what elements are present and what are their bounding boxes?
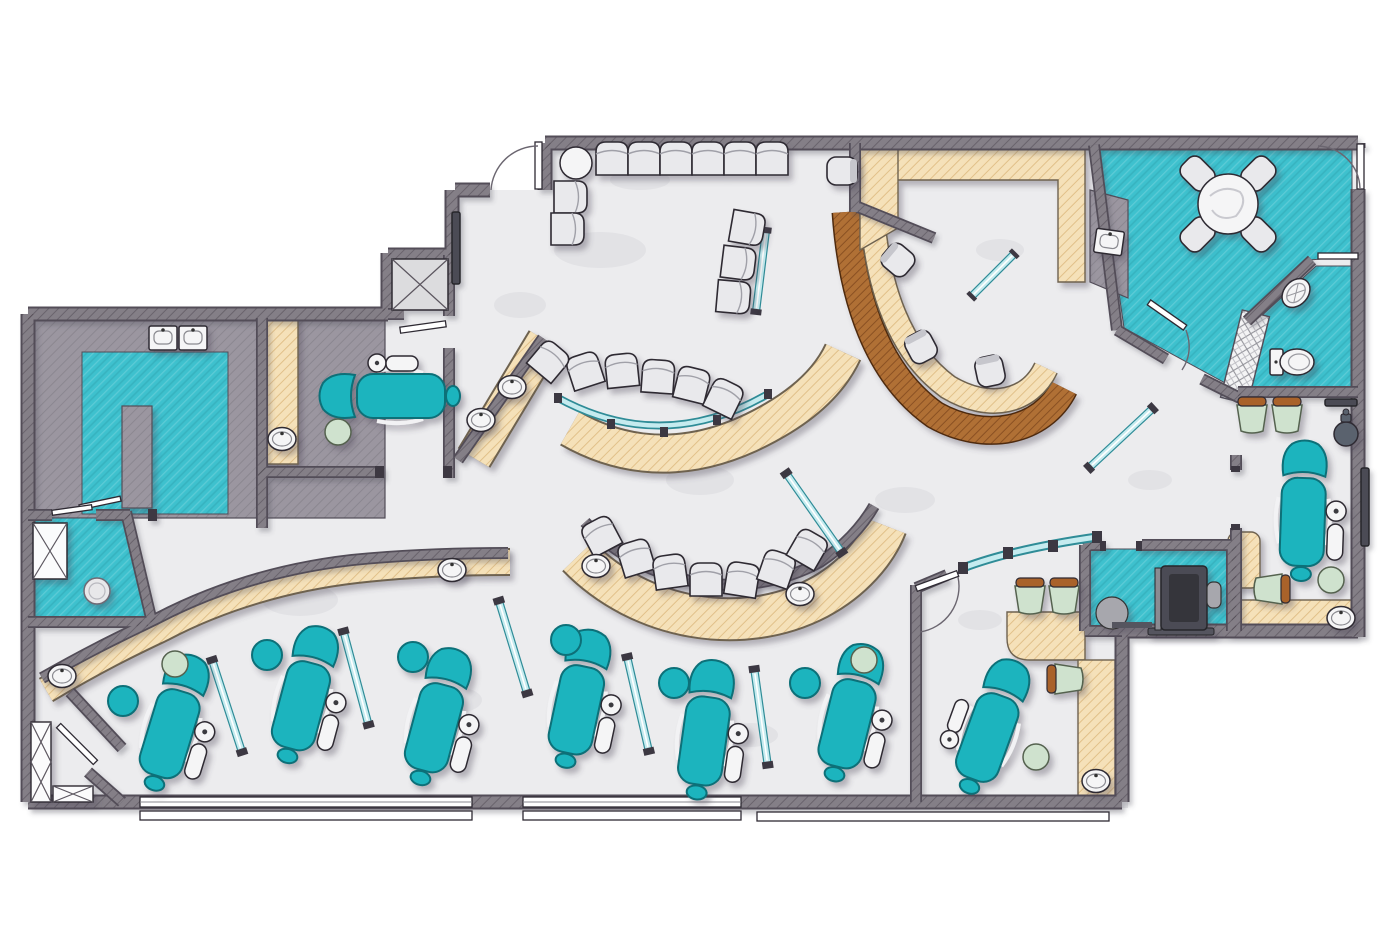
ortho-chair [724, 561, 761, 599]
assistant-stool [851, 647, 877, 673]
operator-stool [108, 686, 138, 716]
sterilization-island [122, 406, 152, 508]
handwash-sink [498, 376, 526, 399]
floor-plan-page: Dental Clinic Floor Plan [0, 0, 1400, 943]
assistant-stool [1023, 744, 1049, 770]
side-chair [1015, 578, 1045, 614]
side-chair [1272, 397, 1302, 433]
waiting-chair [728, 209, 766, 246]
ortho-chair [641, 359, 675, 394]
waiting-chair [628, 142, 660, 175]
waiting-chair [716, 280, 752, 315]
operator-stool [659, 668, 689, 698]
waiting-chair [724, 142, 756, 175]
sterilization-floor [82, 352, 228, 514]
operator-stool [551, 625, 581, 655]
side-chair [1049, 578, 1079, 614]
waiting-chair [596, 142, 628, 175]
operator-stool [252, 640, 282, 670]
assistant-stool [162, 651, 188, 677]
window-sill-3 [757, 812, 1109, 821]
delivery-unit [368, 354, 418, 372]
side-chair [1047, 664, 1083, 694]
coffee-table [560, 147, 592, 179]
waiting-chair [720, 245, 757, 281]
reception-task-chair [973, 353, 1007, 388]
ortho-chair [604, 352, 639, 388]
assistant-stool [325, 419, 351, 445]
operatory-right-window-panel [1361, 468, 1369, 546]
dental-clinic-floor-plan: Dental Clinic Floor Plan [0, 0, 1400, 943]
waiting-chair [660, 142, 692, 175]
side-chair [1254, 574, 1290, 604]
handwash-sink [467, 409, 495, 432]
kitchenette-sink [1093, 228, 1124, 256]
counter-sink [48, 665, 76, 688]
ortho-chair [690, 563, 722, 596]
operator-stool [398, 642, 428, 672]
counter-sink [438, 559, 466, 582]
counter-sink [582, 555, 610, 578]
checkin-chair [827, 157, 857, 185]
vestibule-window-panel [452, 212, 460, 284]
operator-stool [790, 668, 820, 698]
waiting-chair [692, 142, 724, 175]
dental-chair [320, 369, 461, 423]
consult-sink [1082, 770, 1110, 793]
elevator-shaft [392, 259, 448, 310]
operatory-sink [268, 428, 296, 451]
entry-door [491, 142, 542, 190]
toilet [1270, 349, 1314, 375]
counter-sink [786, 583, 814, 606]
utility-stool [84, 578, 110, 604]
waiting-chair [756, 142, 788, 175]
waiting-chair [551, 213, 584, 245]
utility-equipment [33, 523, 67, 579]
waiting-chair [554, 181, 587, 213]
restroom-door [1318, 253, 1358, 259]
ortho-chair [652, 553, 688, 590]
operatory-sink [1327, 607, 1355, 630]
sterilization-sink [179, 326, 207, 350]
side-chair [1237, 397, 1267, 433]
consult-desk-top [1007, 612, 1085, 660]
assistant-stool [1318, 567, 1344, 593]
sterilization-sink [149, 326, 177, 350]
alcove-wall-shelf [1325, 399, 1357, 406]
